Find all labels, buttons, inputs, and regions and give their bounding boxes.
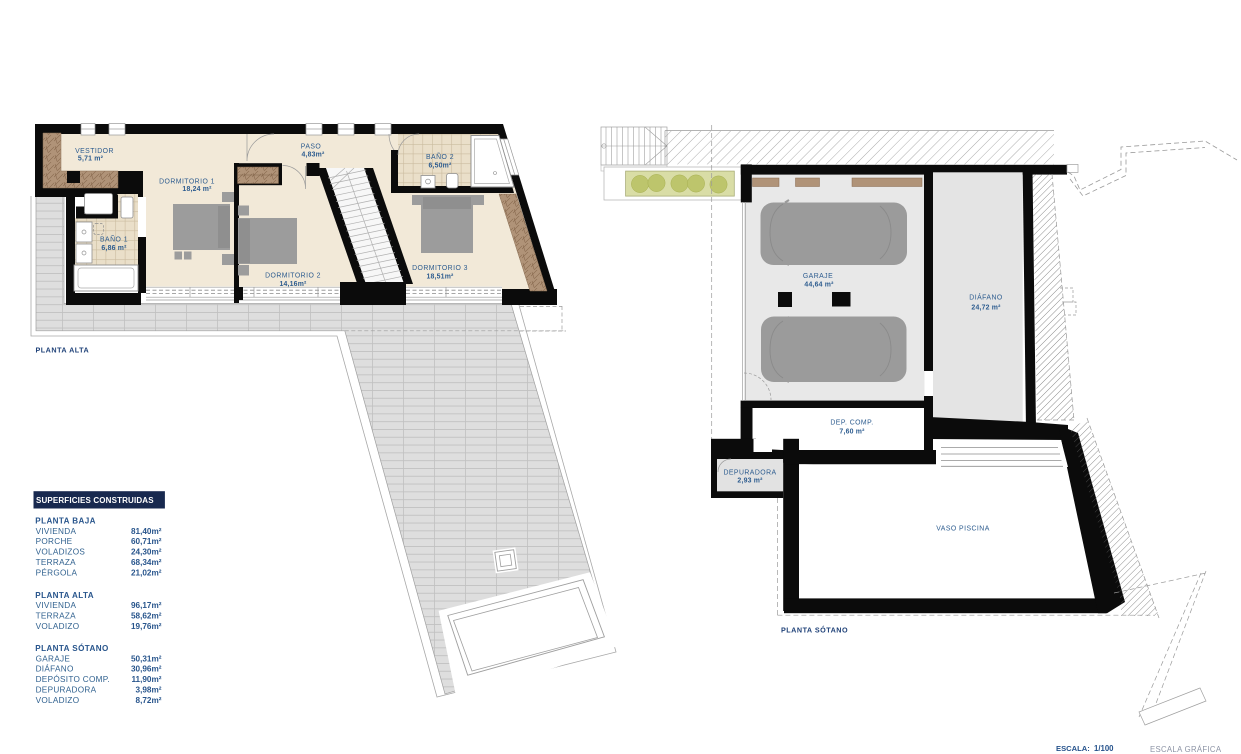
svg-text:PLANTA SÓTANO: PLANTA SÓTANO <box>781 625 848 634</box>
svg-text:18,24 m²: 18,24 m² <box>182 186 212 193</box>
svg-text:VIVIENDA: VIVIENDA <box>36 527 77 536</box>
svg-text:ESCALA:: ESCALA: <box>1056 744 1090 753</box>
svg-text:6,50m²: 6,50m² <box>428 162 452 169</box>
svg-text:24,72 m²: 24,72 m² <box>971 305 1001 312</box>
svg-text:TERRAZA: TERRAZA <box>36 612 77 621</box>
svg-text:DEPURADORA: DEPURADORA <box>723 470 776 477</box>
svg-text:60,71m²: 60,71m² <box>131 537 162 546</box>
svg-text:44,64 m²: 44,64 m² <box>804 282 834 289</box>
svg-text:7,60 m²: 7,60 m² <box>839 429 865 436</box>
svg-text:81,40m²: 81,40m² <box>131 527 162 536</box>
svg-text:DORMITORIO 1: DORMITORIO 1 <box>159 179 215 186</box>
svg-text:DORMITORIO 3: DORMITORIO 3 <box>412 265 468 272</box>
svg-text:96,17m²: 96,17m² <box>131 601 162 610</box>
svg-text:3,98m²: 3,98m² <box>136 686 162 695</box>
svg-text:PLANTA ALTA: PLANTA ALTA <box>35 591 94 600</box>
svg-text:11,90m²: 11,90m² <box>131 675 161 684</box>
svg-text:50,31m²: 50,31m² <box>131 654 162 663</box>
svg-text:PLANTA BAJA: PLANTA BAJA <box>35 516 96 525</box>
svg-text:VOLADIZOS: VOLADIZOS <box>36 548 86 557</box>
svg-text:24,30m²: 24,30m² <box>131 548 162 557</box>
svg-text:PÉRGOLA: PÉRGOLA <box>36 567 78 577</box>
svg-text:GARAJE: GARAJE <box>36 654 71 663</box>
svg-text:PASO: PASO <box>301 144 322 151</box>
svg-text:2,93 m²: 2,93 m² <box>737 478 763 485</box>
svg-text:TERRAZA: TERRAZA <box>36 558 77 567</box>
svg-text:6,86 m²: 6,86 m² <box>101 245 127 252</box>
svg-text:DEPÓSITO COMP.: DEPÓSITO COMP. <box>36 674 110 684</box>
svg-text:58,62m²: 58,62m² <box>131 612 162 621</box>
svg-text:DEPURADORA: DEPURADORA <box>36 686 97 695</box>
svg-text:21,02m²: 21,02m² <box>131 568 162 577</box>
svg-text:68,34m²: 68,34m² <box>131 558 162 567</box>
svg-text:1/100: 1/100 <box>1094 744 1114 753</box>
svg-text:DEP. COMP.: DEP. COMP. <box>830 420 873 427</box>
svg-text:VOLADIZO: VOLADIZO <box>36 696 80 705</box>
svg-text:PLANTA SÓTANO: PLANTA SÓTANO <box>35 644 108 653</box>
svg-text:VASO PISCINA: VASO PISCINA <box>936 526 990 533</box>
svg-text:PORCHE: PORCHE <box>36 537 73 546</box>
svg-text:SUPERFICIES CONSTRUIDAS: SUPERFICIES CONSTRUIDAS <box>36 496 154 505</box>
svg-text:PLANTA ALTA: PLANTA ALTA <box>36 346 90 355</box>
svg-text:14,16m²: 14,16m² <box>279 281 307 288</box>
svg-text:5,71 m²: 5,71 m² <box>78 155 104 162</box>
svg-text:VOLADIZO: VOLADIZO <box>36 622 80 631</box>
svg-text:19,76m²: 19,76m² <box>131 622 162 631</box>
svg-text:DORMITORIO 2: DORMITORIO 2 <box>265 273 321 280</box>
svg-text:GARAJE: GARAJE <box>803 273 833 280</box>
svg-text:DIÁFANO: DIÁFANO <box>36 664 74 674</box>
svg-text:DIÁFANO: DIÁFANO <box>969 293 1003 302</box>
svg-text:VESTIDOR: VESTIDOR <box>75 148 114 155</box>
svg-text:BAÑO 2: BAÑO 2 <box>426 152 454 161</box>
svg-text:4,83m²: 4,83m² <box>301 152 325 159</box>
svg-text:18,51m²: 18,51m² <box>426 273 454 280</box>
svg-text:ESCALA GRÁFICA: ESCALA GRÁFICA <box>1150 745 1222 754</box>
svg-text:VIVIENDA: VIVIENDA <box>36 601 77 610</box>
svg-text:30,96m²: 30,96m² <box>131 665 162 674</box>
svg-text:8,72m²: 8,72m² <box>136 696 162 705</box>
svg-text:BAÑO 1: BAÑO 1 <box>100 235 128 244</box>
